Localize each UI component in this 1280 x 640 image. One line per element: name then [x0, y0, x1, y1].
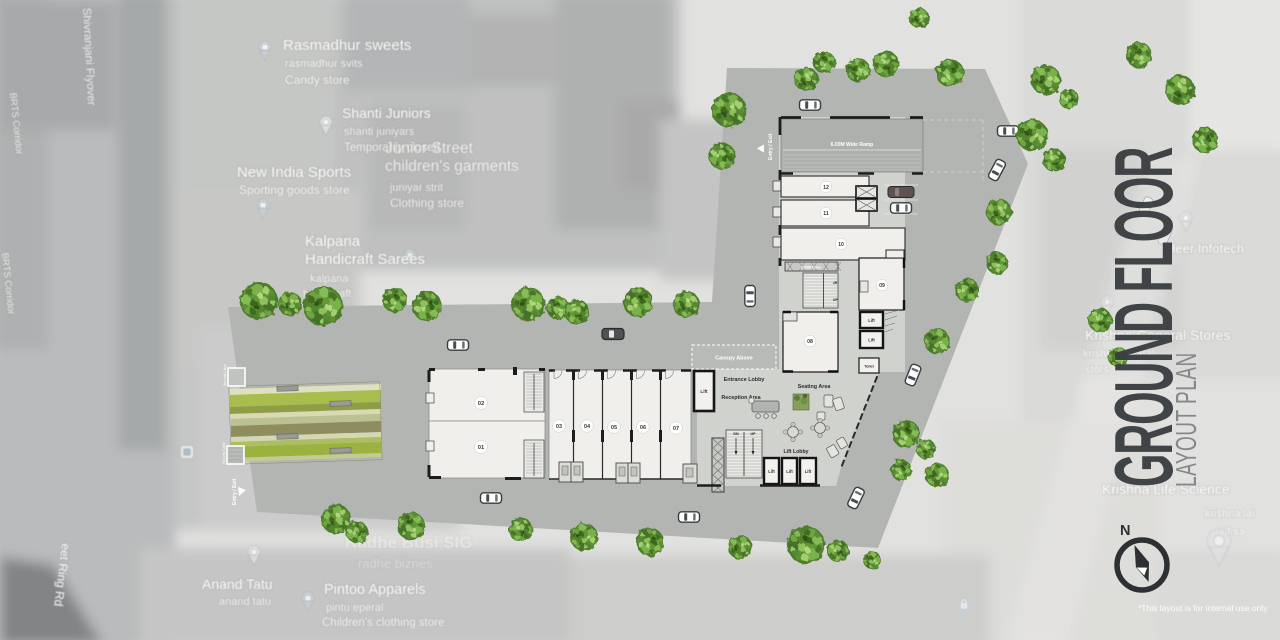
svg-text:Candy store: Candy store [285, 73, 350, 87]
svg-text:N: N [1120, 523, 1130, 539]
svg-text:12: 12 [823, 185, 829, 191]
svg-text:08: 08 [807, 339, 813, 345]
svg-text:Lift: Lift [868, 338, 875, 343]
svg-text:Lift: Lift [768, 469, 775, 474]
svg-text:UP: UP [751, 432, 757, 436]
svg-text:Entry / Exit: Entry / Exit [232, 479, 238, 505]
svg-text:Entry / Exit: Entry / Exit [768, 134, 774, 160]
svg-text:children's garments: children's garments [385, 158, 519, 175]
svg-text:01: 01 [478, 445, 485, 451]
svg-text:Lift Lobby: Lift Lobby [783, 449, 808, 455]
svg-text:Sporting goods store: Sporting goods store [239, 183, 350, 197]
svg-text:07: 07 [673, 426, 679, 432]
svg-text:03: 03 [556, 424, 562, 430]
svg-text:Lift: Lift [868, 318, 875, 323]
svg-text:UP: UP [833, 298, 838, 302]
svg-text:krishna lai: krishna lai [1205, 508, 1255, 520]
svg-text:Security Cabin: Security Cabin [223, 364, 227, 386]
svg-text:rasmadhur svits: rasmadhur svits [285, 58, 363, 70]
svg-text:Children's clothing store: Children's clothing store [322, 617, 444, 629]
svg-text:Lift: Lift [786, 469, 793, 474]
svg-text:Canopy Above: Canopy Above [715, 356, 753, 362]
svg-text:Reception Area: Reception Area [721, 395, 761, 401]
svg-text:radhe biznes: radhe biznes [358, 556, 433, 571]
svg-text:juniyar strit: juniyar strit [389, 182, 443, 194]
svg-text:pintu eperal: pintu eperal [326, 602, 384, 614]
svg-text:02: 02 [478, 401, 484, 407]
svg-text:11: 11 [823, 211, 829, 217]
svg-text:Toilet: Toilet [864, 365, 875, 369]
svg-text:New India Sports: New India Sports [237, 164, 351, 181]
svg-text:kalpana: kalpana [310, 273, 349, 285]
svg-text:Handicraft Sarees: Handicraft Sarees [305, 251, 425, 268]
svg-text:04: 04 [584, 424, 591, 430]
svg-text:Entrance Lobby: Entrance Lobby [724, 377, 765, 383]
svg-text:Lift: Lift [805, 469, 812, 474]
svg-text:6.00M Wide Ramp: 6.00M Wide Ramp [831, 142, 873, 148]
svg-text:Kalpana: Kalpana [305, 233, 361, 250]
svg-text:09: 09 [879, 283, 885, 289]
svg-text:Seating Area: Seating Area [798, 384, 832, 390]
svg-text:6.00M Drive: 6.00M Drive [801, 266, 821, 270]
svg-text:shanti juniyars: shanti juniyars [344, 126, 415, 138]
svg-text:05: 05 [611, 425, 617, 431]
svg-text:10: 10 [838, 242, 844, 248]
svg-text:Security Cabin: Security Cabin [222, 442, 226, 464]
svg-text:Anand Tatu: Anand Tatu [202, 576, 273, 592]
svg-text:Shanti Juniors: Shanti Juniors [342, 105, 431, 121]
svg-text:Pintoo Apparels: Pintoo Apparels [324, 582, 426, 598]
svg-text:LAYOUT PLAN: LAYOUT PLAN [1171, 352, 1203, 487]
svg-text:*This layout is for internal u: *This layout is for internal use only [1138, 603, 1268, 613]
svg-text:Junior Street: Junior Street [385, 140, 474, 157]
svg-text:2R: 2R [833, 281, 838, 285]
svg-text:Rasmadhur sweets: Rasmadhur sweets [283, 37, 411, 54]
svg-text:06: 06 [640, 425, 646, 431]
svg-text:Clothing store: Clothing store [390, 196, 464, 210]
svg-text:DN: DN [733, 432, 739, 436]
svg-text:Lift: Lift [700, 389, 708, 394]
svg-text:anand tatu: anand tatu [219, 596, 271, 608]
